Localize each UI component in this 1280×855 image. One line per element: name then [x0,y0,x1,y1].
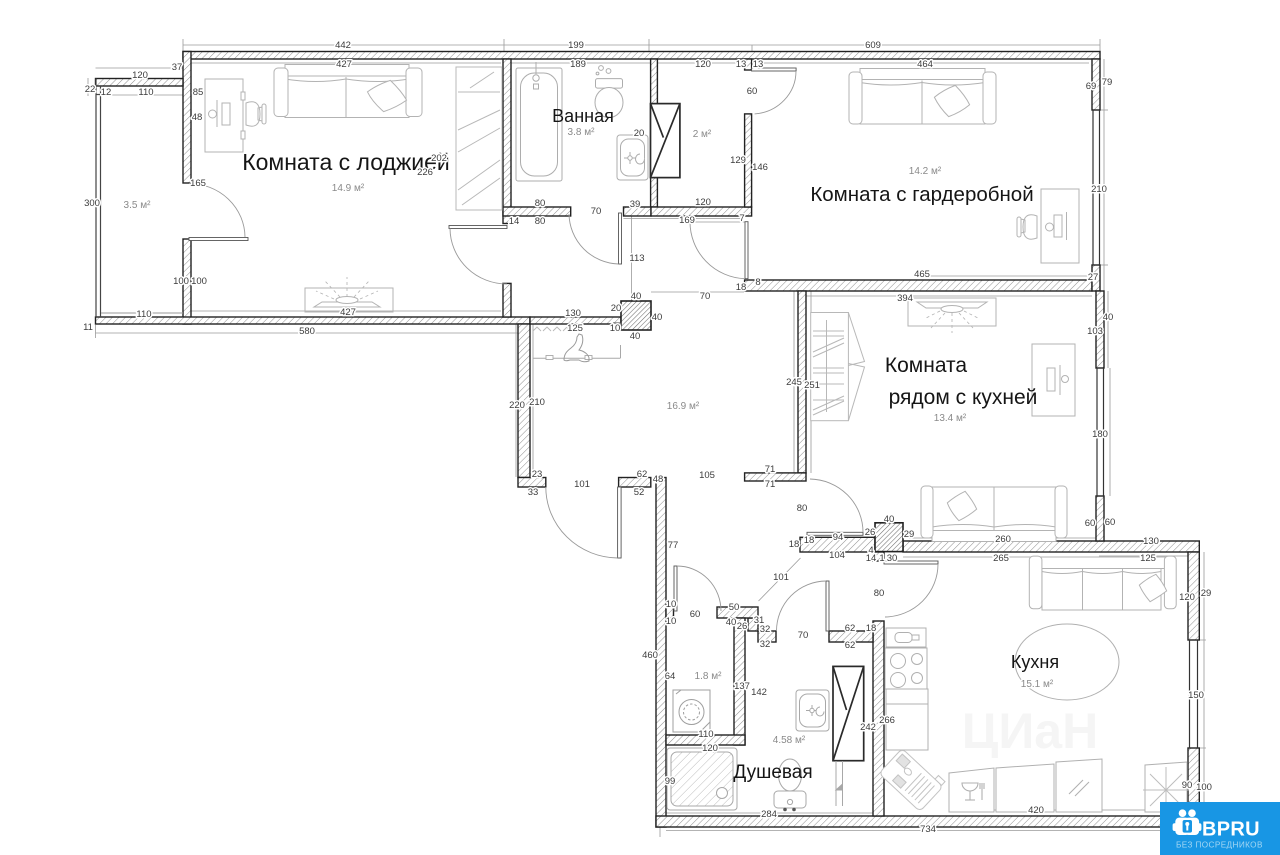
svg-text:113: 113 [629,253,644,264]
svg-text:12: 12 [101,87,112,98]
svg-text:394: 394 [897,293,913,304]
svg-text:60: 60 [1085,518,1096,529]
svg-text:37: 37 [172,62,183,73]
svg-text:80: 80 [797,503,808,514]
svg-text:130: 130 [565,308,581,319]
svg-text:100: 100 [173,276,189,287]
svg-text:БЕЗ ПОСРЕДНИКОВ: БЕЗ ПОСРЕДНИКОВ [1176,841,1263,850]
svg-text:23: 23 [532,469,543,480]
svg-text:101: 101 [773,572,789,583]
svg-text:30: 30 [887,553,898,564]
svg-text:29: 29 [904,529,915,540]
svg-text:103: 103 [1087,326,1103,337]
svg-text:609: 609 [865,40,881,51]
svg-text:39: 39 [630,199,641,210]
svg-text:80: 80 [535,216,546,227]
svg-text:29: 29 [1201,588,1212,599]
svg-text:245: 245 [786,377,802,388]
svg-text:100: 100 [1196,782,1212,793]
svg-text:Ванная: Ванная [552,106,614,126]
svg-text:150: 150 [1188,690,1204,701]
svg-text:14: 14 [866,553,877,564]
svg-text:101: 101 [574,479,590,490]
svg-text:420: 420 [1028,805,1044,816]
svg-text:3.5 м²: 3.5 м² [124,200,152,211]
svg-text:125: 125 [1140,553,1156,564]
svg-text:734: 734 [920,824,936,835]
svg-text:120: 120 [695,197,711,208]
svg-text:71: 71 [765,464,776,475]
svg-text:62: 62 [845,623,856,634]
svg-text:110: 110 [138,87,153,98]
svg-text:110: 110 [698,729,713,740]
svg-text:79: 79 [1102,77,1113,88]
svg-text:442: 442 [335,40,351,51]
svg-text:8: 8 [755,277,760,288]
svg-text:11: 11 [83,322,93,333]
svg-text:266: 266 [879,715,895,726]
svg-text:40: 40 [1103,312,1114,323]
svg-text:169: 169 [679,215,695,226]
svg-text:146: 146 [752,162,768,173]
svg-text:105: 105 [699,470,715,481]
svg-text:100: 100 [191,276,207,287]
svg-text:180: 180 [1092,429,1108,440]
svg-text:427: 427 [336,59,352,70]
svg-text:3.8 м²: 3.8 м² [568,127,596,138]
svg-text:22: 22 [85,84,96,95]
svg-text:14: 14 [509,216,520,227]
svg-text:16.9 м²: 16.9 м² [667,401,700,412]
svg-text:52: 52 [634,487,645,498]
svg-text:60: 60 [747,86,758,97]
svg-text:300: 300 [84,198,100,209]
svg-text:284: 284 [761,809,777,820]
svg-text:260: 260 [995,534,1011,545]
svg-text:210: 210 [1091,184,1107,195]
svg-text:18: 18 [789,539,800,550]
svg-text:40: 40 [631,291,642,302]
svg-text:110: 110 [136,309,151,320]
svg-text:202: 202 [431,153,447,164]
svg-text:40: 40 [726,617,737,628]
svg-text:125: 125 [567,323,583,334]
svg-text:ЦИаН: ЦИаН [962,703,1098,759]
svg-text:120: 120 [132,70,148,81]
svg-text:14.2 м²: 14.2 м² [909,166,942,177]
svg-text:220: 220 [509,400,525,411]
svg-text:465: 465 [914,269,930,280]
svg-text:1: 1 [879,553,884,564]
svg-text:Комната: Комната [885,354,968,377]
svg-text:2 м²: 2 м² [693,129,712,140]
svg-text:142: 142 [751,687,767,698]
svg-text:62: 62 [637,469,648,480]
svg-text:189: 189 [570,59,586,70]
svg-text:48: 48 [653,474,664,485]
svg-text:130: 130 [1143,536,1159,547]
svg-text:50: 50 [729,602,740,613]
svg-text:10: 10 [666,599,677,610]
svg-text:4.58 м²: 4.58 м² [773,735,806,746]
svg-text:20: 20 [634,128,645,139]
svg-text:32: 32 [760,624,771,635]
svg-text:226: 226 [417,167,433,178]
svg-text:120: 120 [695,59,711,70]
svg-text:64: 64 [665,671,676,682]
svg-text:70: 70 [700,291,711,302]
svg-text:460: 460 [642,650,658,661]
svg-text:Комната с гардеробной: Комната с гардеробной [810,183,1033,206]
svg-text:14.9 м²: 14.9 м² [332,183,365,194]
svg-text:BPRU: BPRU [1202,819,1260,841]
svg-text:210: 210 [529,397,545,408]
svg-text:199: 199 [568,40,584,51]
svg-text:120: 120 [702,743,718,754]
svg-text:18: 18 [736,282,747,293]
svg-text:10: 10 [610,323,621,334]
svg-text:70: 70 [798,630,809,641]
svg-text:137: 137 [734,681,750,692]
svg-text:265: 265 [993,553,1009,564]
svg-text:26: 26 [865,527,876,538]
svg-text:94: 94 [833,532,844,543]
svg-text:18: 18 [866,623,877,634]
svg-text:80: 80 [874,588,885,599]
svg-text:104: 104 [829,550,845,561]
svg-text:рядом с кухней: рядом с кухней [889,386,1038,409]
svg-text:15.1 м²: 15.1 м² [1021,679,1054,690]
svg-text:251: 251 [804,380,820,391]
svg-text:48: 48 [192,112,203,123]
svg-text:80: 80 [535,198,546,209]
svg-text:69: 69 [1086,81,1097,92]
svg-text:40: 40 [884,514,895,525]
svg-text:60: 60 [1105,517,1116,528]
svg-text:70: 70 [591,206,602,217]
svg-text:18: 18 [804,535,815,546]
svg-text:20: 20 [611,303,622,314]
svg-text:99: 99 [665,776,676,787]
svg-text:26: 26 [737,621,748,632]
svg-text:62: 62 [845,640,856,651]
svg-text:77: 77 [668,540,679,551]
svg-text:60: 60 [690,609,701,620]
svg-text:71: 71 [765,479,776,490]
svg-text:85: 85 [193,87,204,98]
svg-text:129: 129 [730,155,746,166]
svg-text:40: 40 [652,312,663,323]
svg-text:Душевая: Душевая [733,762,812,783]
svg-text:120: 120 [1179,592,1195,603]
svg-text:10: 10 [666,616,677,627]
svg-text:464: 464 [917,59,933,70]
svg-text:242: 242 [860,722,876,733]
svg-text:427: 427 [340,307,356,318]
svg-text:33: 33 [528,487,539,498]
svg-text:165: 165 [190,178,206,189]
svg-text:13: 13 [736,59,747,70]
svg-text:1.8 м²: 1.8 м² [695,671,723,682]
svg-text:27: 27 [1088,272,1099,283]
svg-text:13.4 м²: 13.4 м² [934,413,967,424]
svg-text:40: 40 [630,331,641,342]
svg-text:13: 13 [753,59,764,70]
svg-text:Кухня: Кухня [1011,652,1059,672]
svg-text:7: 7 [739,213,744,224]
svg-text:32: 32 [760,639,771,650]
svg-text:90: 90 [1182,780,1193,791]
svg-text:580: 580 [299,326,315,337]
